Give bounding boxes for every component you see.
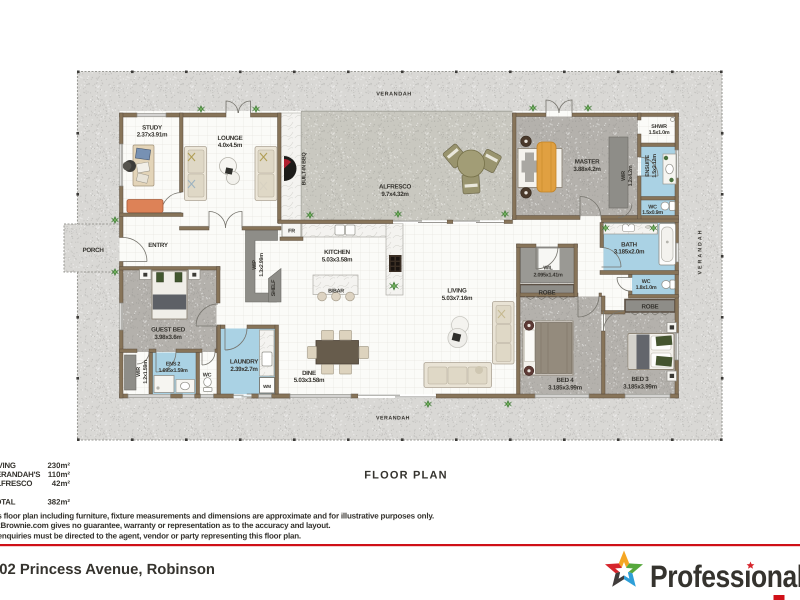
svg-text:ENS 2: ENS 2 <box>166 362 181 368</box>
svg-text:1.8x1.0m: 1.8x1.0m <box>636 285 657 291</box>
svg-text:BED 3: BED 3 <box>632 376 650 383</box>
svg-text:ROBE: ROBE <box>539 290 556 297</box>
svg-text:ENSUITE: ENSUITE <box>645 155 651 177</box>
svg-text:KITCHEN: KITCHEN <box>324 249 351 256</box>
svg-text:102 Princess Avenue, Robinson: 102 Princess Avenue, Robinson <box>0 562 215 578</box>
svg-text:ROBE: ROBE <box>642 304 659 311</box>
svg-text:382m²: 382m² <box>47 498 70 507</box>
svg-text:1.2x4.2m: 1.2x4.2m <box>628 165 634 186</box>
svg-text:PORCH: PORCH <box>82 247 104 254</box>
svg-text:WIR: WIR <box>136 367 142 377</box>
svg-text:BoxBrownie.com gives no guaran: BoxBrownie.com gives no guarantee, warra… <box>0 521 330 530</box>
svg-text:MASTER: MASTER <box>575 159 600 166</box>
svg-text:230m²: 230m² <box>47 461 70 470</box>
svg-text:WIP: WIP <box>252 260 258 270</box>
svg-text:110m²: 110m² <box>48 470 71 479</box>
svg-text:42m²: 42m² <box>52 479 71 488</box>
svg-text:ALFRESCO: ALFRESCO <box>0 479 32 488</box>
svg-text:3.88x4.2m: 3.88x4.2m <box>573 166 601 173</box>
svg-text:5.03x3.58m: 5.03x3.58m <box>322 257 353 264</box>
svg-text:VERANDAH: VERANDAH <box>376 416 410 422</box>
svg-text:BUILT-IN BBQ: BUILT-IN BBQ <box>302 153 308 186</box>
svg-text:SHELF: SHELF <box>271 279 277 296</box>
svg-text:3.185x2.0m: 3.185x2.0m <box>614 249 645 256</box>
svg-text:5.03x3.58m: 5.03x3.58m <box>294 377 325 384</box>
svg-text:1.2x1.59m: 1.2x1.59m <box>143 360 149 384</box>
svg-text:All enquiries must be directed: All enquiries must be directed to the ag… <box>0 532 301 541</box>
svg-text:5.03x7.16m: 5.03x7.16m <box>442 295 473 302</box>
svg-text:WIL: WIL <box>543 266 553 272</box>
svg-text:STUDY: STUDY <box>142 125 163 132</box>
svg-text:LAUNDRY: LAUNDRY <box>230 359 259 366</box>
svg-text:ENTRY: ENTRY <box>148 242 169 249</box>
svg-text:1.695x1.59m: 1.695x1.59m <box>158 368 187 374</box>
svg-text:VERANDAH'S: VERANDAH'S <box>0 470 40 479</box>
svg-text:4.0x4.5m: 4.0x4.5m <box>218 142 243 149</box>
svg-text:ALFRESCO: ALFRESCO <box>379 184 411 191</box>
svg-text:GUEST BED: GUEST BED <box>151 327 186 334</box>
svg-text:Professıonals: Professıonals <box>650 559 800 594</box>
svg-text:B/BAR: B/BAR <box>328 289 344 295</box>
svg-text:2.39x2.7m: 2.39x2.7m <box>230 366 258 373</box>
svg-text:3.185x3.99m: 3.185x3.99m <box>548 385 582 392</box>
svg-text:1.5x2.12m: 1.5x2.12m <box>652 154 658 178</box>
svg-text:LIVING: LIVING <box>0 461 16 470</box>
svg-text:BED 4: BED 4 <box>557 377 575 384</box>
svg-text:WC: WC <box>203 373 212 379</box>
svg-text:FR: FR <box>288 229 295 235</box>
svg-text:9.7x4.32m: 9.7x4.32m <box>381 191 409 198</box>
svg-text:1.3x2.99m: 1.3x2.99m <box>259 253 265 277</box>
svg-text:LIVING: LIVING <box>447 288 467 295</box>
svg-text:This floor plan including furn: This floor plan including furniture, fix… <box>0 512 434 521</box>
svg-text:WIR: WIR <box>621 171 627 181</box>
svg-text:VERANDAH: VERANDAH <box>698 228 704 274</box>
svg-text:3.185x3.99m: 3.185x3.99m <box>623 384 657 391</box>
svg-text:LOUNGE: LOUNGE <box>218 135 243 142</box>
svg-text:3.98x3.6m: 3.98x3.6m <box>154 334 182 341</box>
svg-text:FLOOR PLAN: FLOOR PLAN <box>364 470 448 482</box>
svg-text:1.5x0.9m: 1.5x0.9m <box>642 210 663 216</box>
svg-text:2.37x3.91m: 2.37x3.91m <box>137 132 168 139</box>
svg-text:DINE: DINE <box>302 370 316 377</box>
svg-text:BATH: BATH <box>621 242 638 249</box>
svg-text:VERANDAH: VERANDAH <box>376 92 412 98</box>
svg-text:TOTAL: TOTAL <box>0 498 16 507</box>
svg-text:WM: WM <box>263 384 271 389</box>
svg-text:1.5x1.0m: 1.5x1.0m <box>649 130 670 136</box>
svg-text:2.095x1.41m: 2.095x1.41m <box>533 273 562 279</box>
